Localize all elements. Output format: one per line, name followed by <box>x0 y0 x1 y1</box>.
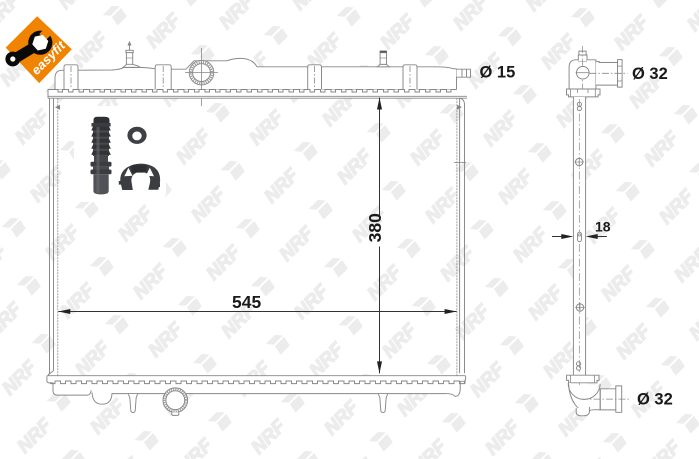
svg-text:18: 18 <box>595 219 611 235</box>
svg-text:380: 380 <box>365 213 385 242</box>
svg-text:545: 545 <box>232 292 261 312</box>
svg-text:Ø 32: Ø 32 <box>637 391 673 409</box>
svg-text:Ø 32: Ø 32 <box>632 65 668 83</box>
svg-text:Ø 15: Ø 15 <box>480 64 516 82</box>
